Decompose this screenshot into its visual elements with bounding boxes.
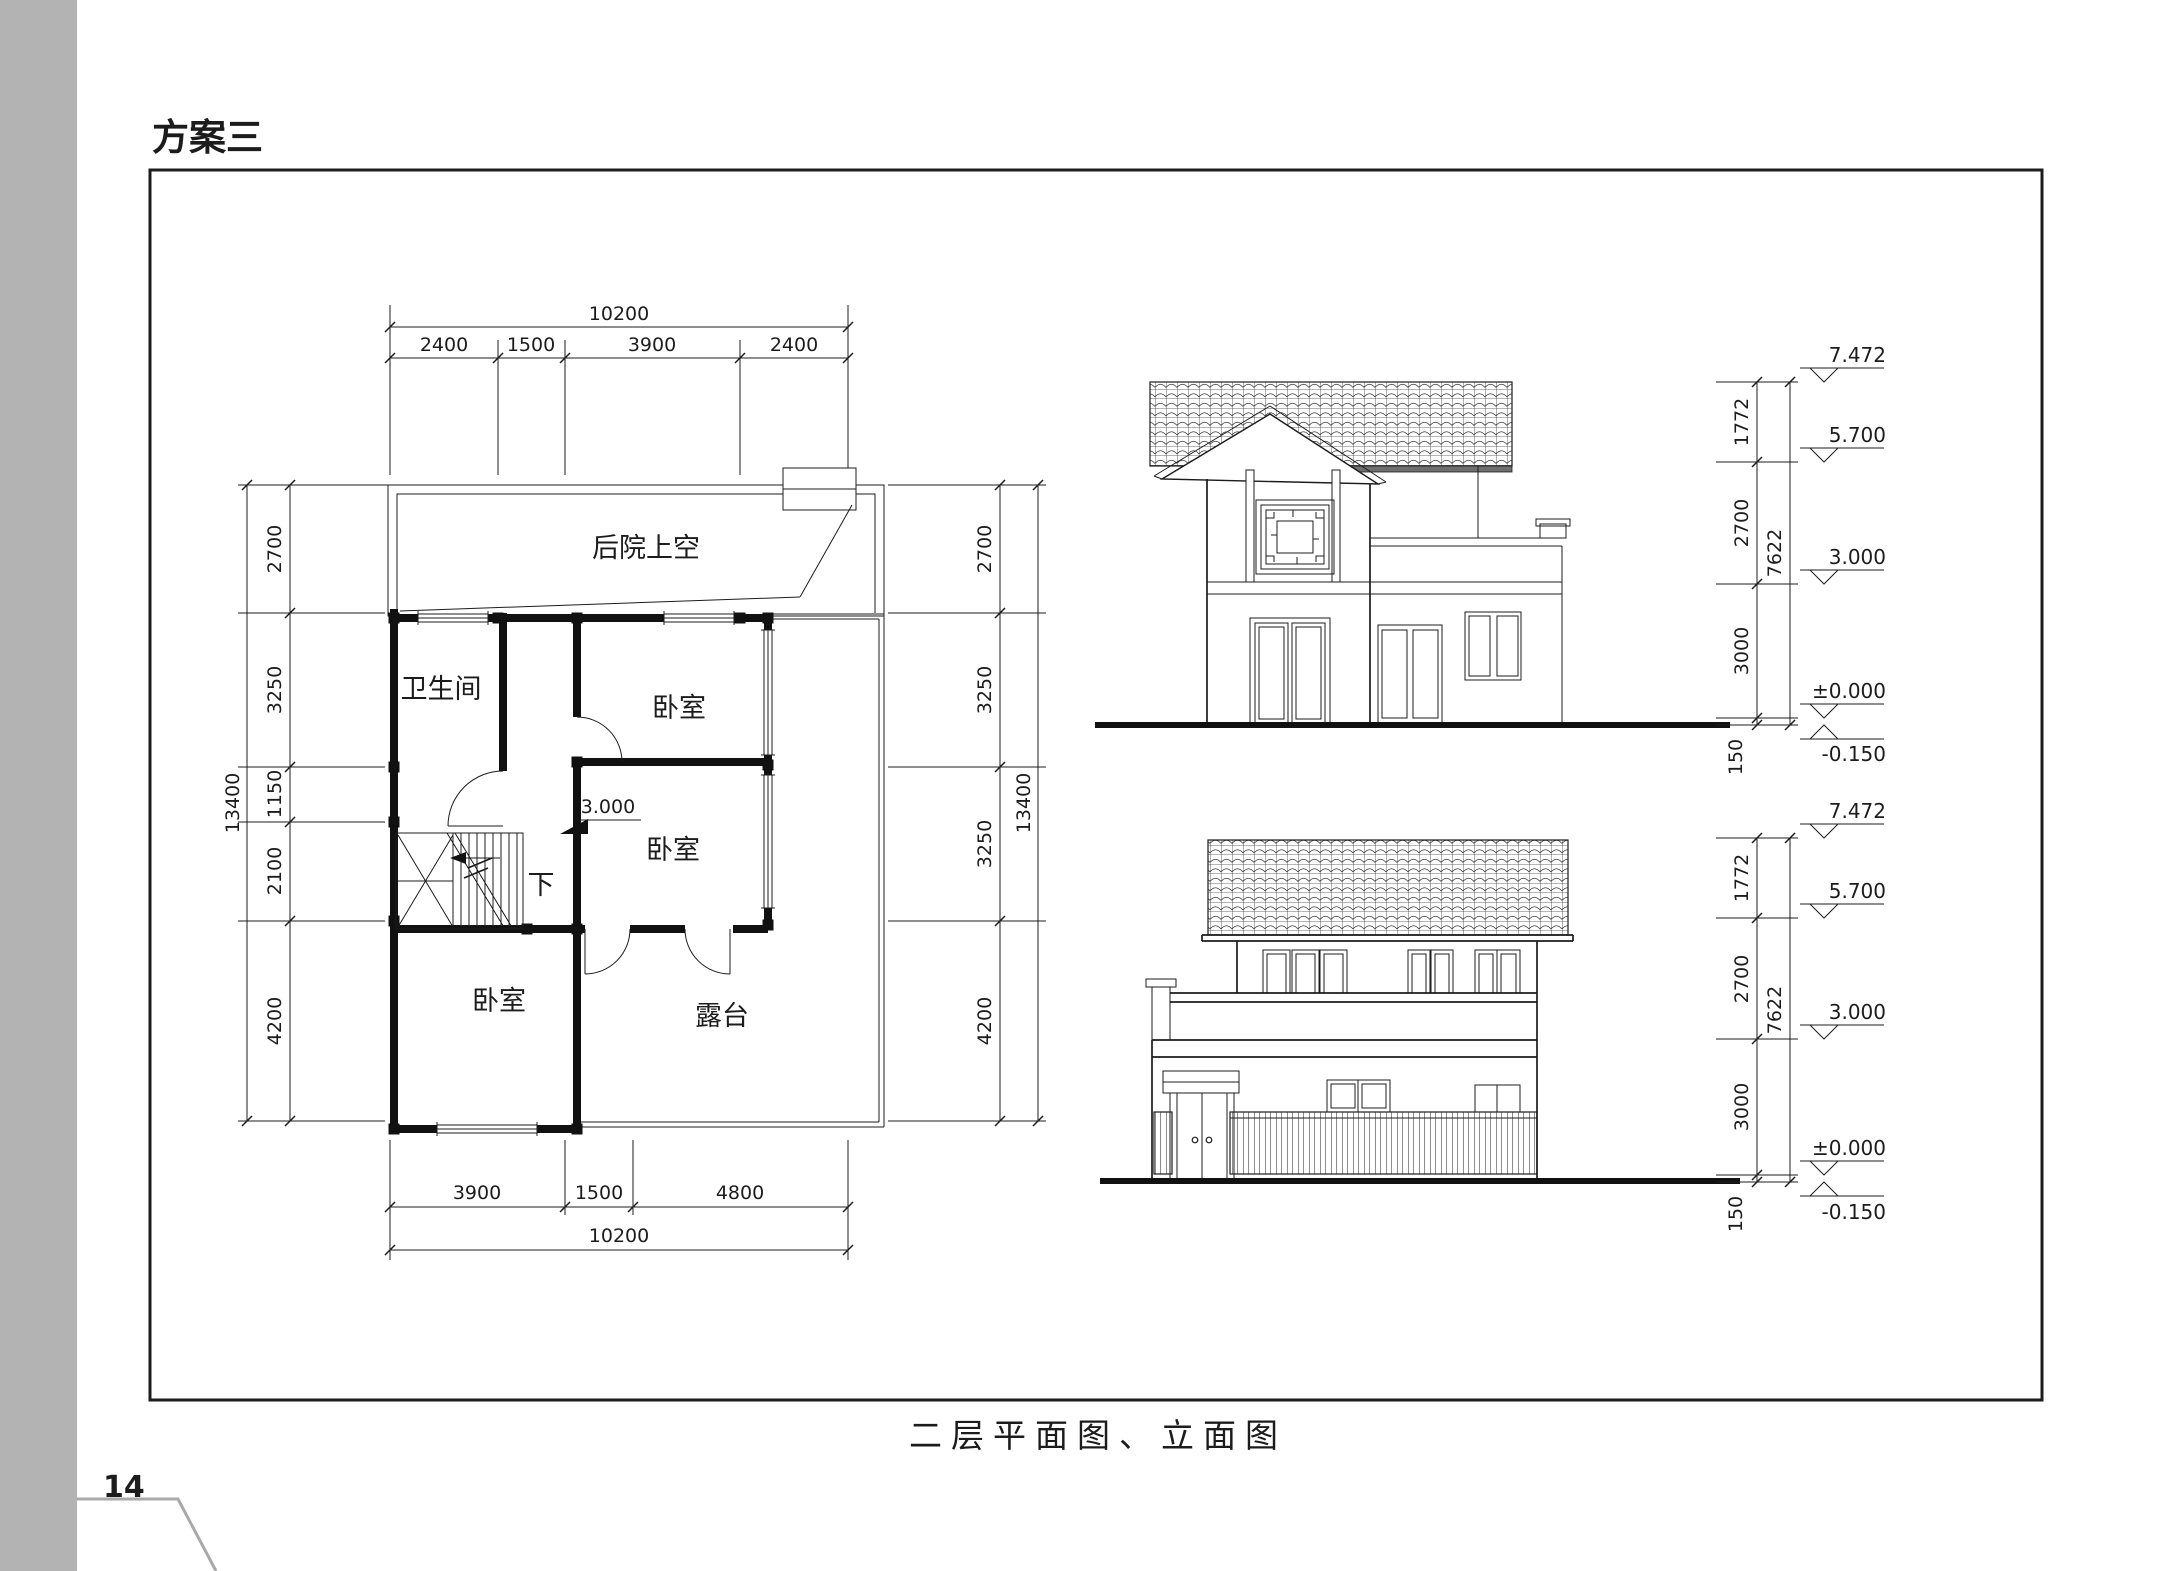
room-label-stair-down: 下: [528, 870, 555, 901]
plan-dim-right: 2700 3250 3250 4200 13400: [888, 480, 1046, 1126]
svg-text:±0.000: ±0.000: [1812, 679, 1886, 703]
front-dim-h4: 150: [1725, 1196, 1747, 1232]
dim-top-seg4: 2400: [770, 334, 818, 356]
svg-text:3.000: 3.000: [1829, 545, 1886, 569]
dim-right-seg4: 4200: [974, 997, 996, 1045]
svg-text:-0.150: -0.150: [1822, 1200, 1886, 1224]
side-level-minus150: -0.150: [1800, 725, 1886, 766]
dim-top-seg1: 2400: [420, 334, 468, 356]
sidebar-gray-bar: [0, 0, 77, 1571]
room-label-bathroom: 卫生间: [401, 674, 482, 705]
drawing-sheet: 方案三 二层平面图、立面图 14 10200 2400 1500 3900 24…: [0, 0, 2173, 1571]
front-parapet-post: [1152, 987, 1170, 1040]
side-dim-h3: 3000: [1731, 627, 1753, 675]
room-label-bedroom-mid: 卧室: [646, 835, 700, 866]
plan-landing-level: 3.000: [581, 796, 635, 818]
front-dim-h2: 2700: [1731, 955, 1753, 1003]
svg-text:7.472: 7.472: [1829, 799, 1886, 823]
front-entrance: [1163, 1071, 1239, 1181]
side-tower-doors: [1250, 618, 1330, 723]
dim-right-seg3: 3250: [974, 820, 996, 868]
front-dim-h1: 1772: [1731, 854, 1753, 902]
dim-bottom-overall: 10200: [589, 1225, 649, 1247]
front-lower-windows: [1327, 1080, 1520, 1112]
svg-text:5.700: 5.700: [1829, 879, 1886, 903]
svg-text:7.472: 7.472: [1829, 343, 1886, 367]
svg-text:5.700: 5.700: [1829, 423, 1886, 447]
side-level-0000: ±0.000: [1800, 679, 1886, 718]
front-dim-h3: 3000: [1731, 1083, 1753, 1131]
front-upper-windows: [1263, 950, 1520, 993]
plan-level-marker: 3.000: [560, 796, 641, 834]
dim-top-overall: 10200: [589, 303, 649, 325]
corner-decoration-line: [77, 1499, 216, 1571]
sheet-caption: 二层平面图、立面图: [909, 1416, 1287, 1455]
dim-right-seg1: 2700: [974, 525, 996, 573]
dim-left-seg4: 2100: [264, 847, 286, 895]
side-right-window: [1465, 612, 1521, 680]
room-label-bedroom-top: 卧室: [652, 693, 706, 724]
page-title: 方案三: [152, 116, 263, 159]
side-middle-doors: [1378, 625, 1442, 723]
room-label-terrace: 露台: [695, 1001, 749, 1032]
svg-text:±0.000: ±0.000: [1812, 1136, 1886, 1160]
dim-left-seg2: 3250: [264, 666, 286, 714]
dim-left-overall: 13400: [222, 773, 244, 833]
dim-bottom-seg2: 1500: [575, 1182, 623, 1204]
dim-left-seg5: 4200: [264, 997, 286, 1045]
front-roof-tiles: [1208, 840, 1568, 935]
side-dim-h1: 1772: [1731, 398, 1753, 446]
side-level-5700: 5.700: [1800, 423, 1886, 462]
room-label-backyard: 后院上空: [592, 533, 700, 564]
front-level-3000: 3.000: [1800, 1000, 1886, 1039]
stair-direction-arrow: [450, 852, 466, 864]
svg-text:-0.150: -0.150: [1822, 742, 1886, 766]
front-level-5700: 5.700: [1800, 879, 1886, 918]
side-lattice-window: [1256, 500, 1334, 574]
elevation-side-dims: 1772 2700 3000 150 7622 7.472 5.700 3.00…: [1716, 343, 1886, 775]
dim-right-seg2: 3250: [974, 666, 996, 714]
dim-bottom-seg1: 3900: [453, 1182, 501, 1204]
plan-dim-bottom: 3900 1500 4800 10200: [385, 1140, 853, 1260]
side-dim-h4: 150: [1725, 739, 1747, 775]
plan-terrace-boundary: [581, 614, 884, 1127]
dim-top-seg3: 3900: [628, 334, 676, 356]
dim-right-overall: 13400: [1013, 773, 1035, 833]
dim-left-seg3: 1150: [264, 770, 286, 818]
plan-dim-top: 10200 2400 1500 3900 2400: [385, 303, 853, 475]
elevation-front: [1100, 840, 1740, 1181]
side-level-7472: 7.472: [1800, 343, 1886, 382]
page: 方案三 二层平面图、立面图 14 10200 2400 1500 3900 24…: [0, 0, 2173, 1571]
side-dim-overall: 7622: [1764, 529, 1786, 577]
elevation-side: [1095, 382, 1730, 725]
plan-dim-left: 2700 3250 1150 2100 4200 13400: [222, 480, 388, 1126]
dim-top-seg2: 1500: [507, 334, 555, 356]
front-level-minus150: -0.150: [1800, 1182, 1886, 1224]
front-level-0000: ±0.000: [1800, 1136, 1886, 1175]
dim-left-seg1: 2700: [264, 525, 286, 573]
front-level-7472: 7.472: [1800, 799, 1886, 838]
elevation-front-dims: 1772 2700 3000 150 7622 7.472 5.700 3.00…: [1716, 799, 1886, 1232]
front-fence: [1154, 1112, 1537, 1174]
svg-text:3.000: 3.000: [1829, 1000, 1886, 1024]
side-dim-h2: 2700: [1731, 499, 1753, 547]
front-dim-overall: 7622: [1764, 986, 1786, 1034]
side-level-3000: 3.000: [1800, 545, 1886, 584]
room-label-bedroom-bottom: 卧室: [472, 986, 526, 1017]
plan-stairs: [396, 833, 523, 929]
dim-bottom-seg3: 4800: [716, 1182, 764, 1204]
